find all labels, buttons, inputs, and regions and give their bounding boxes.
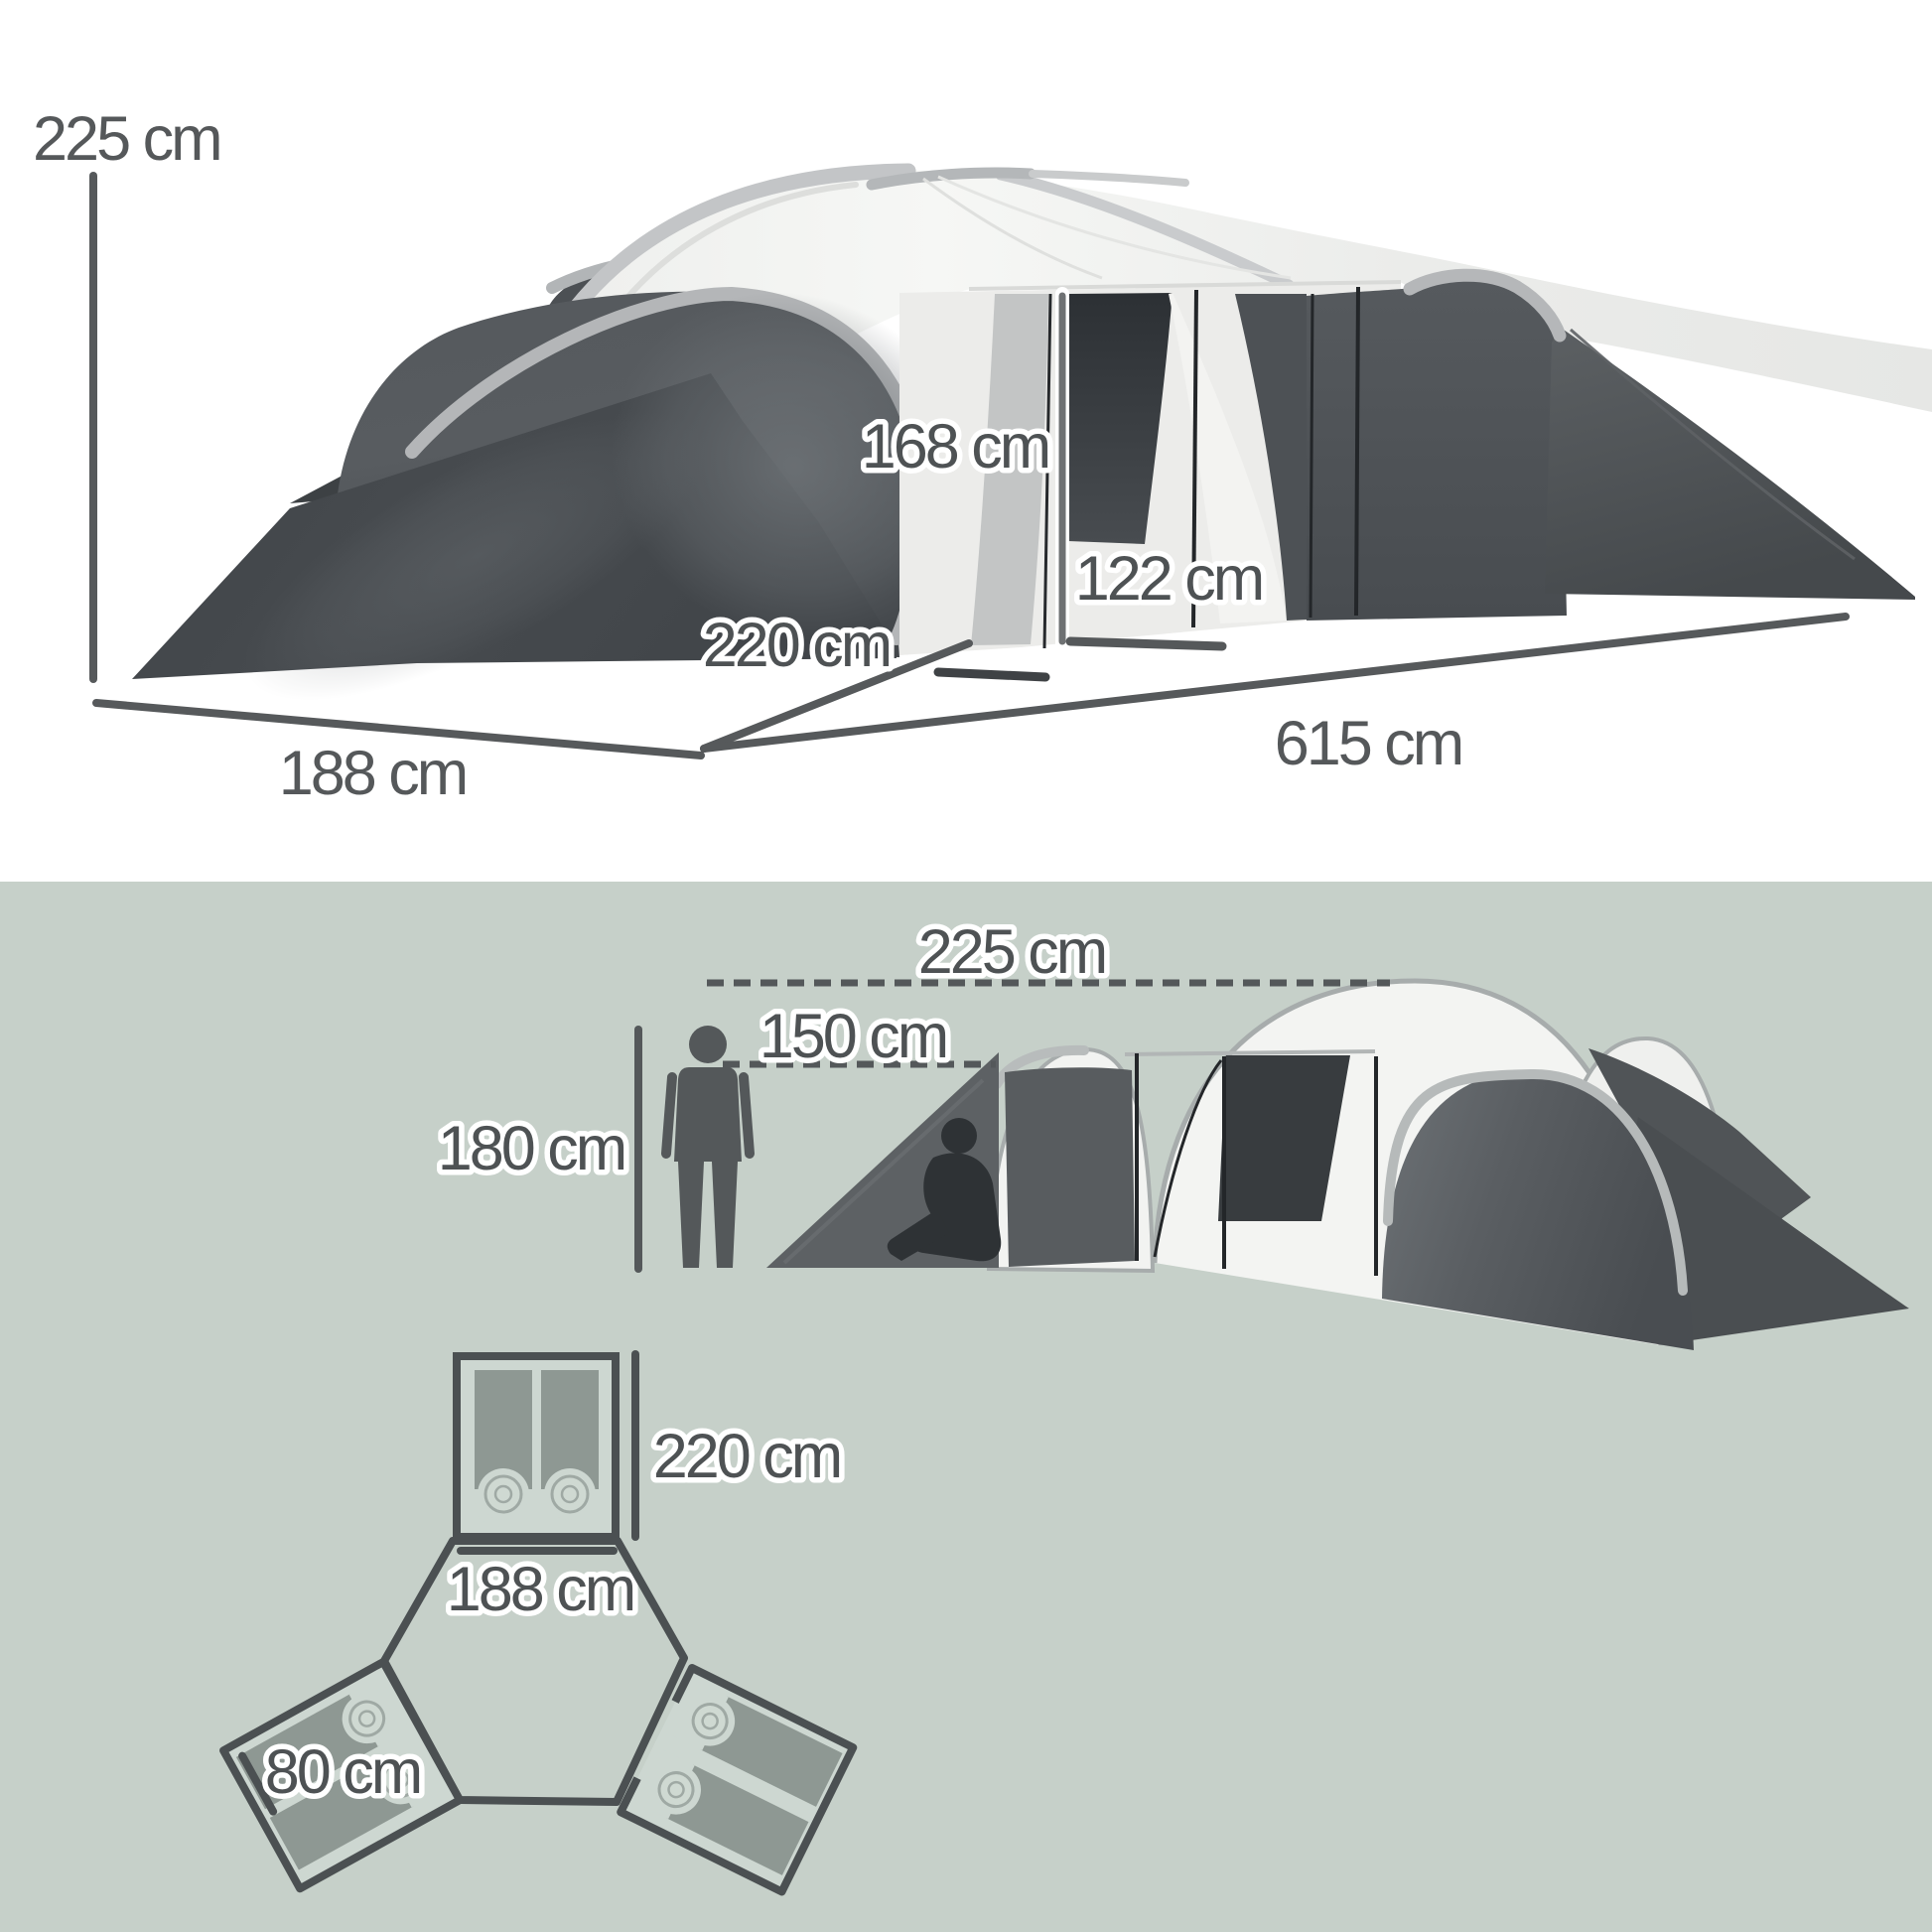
svg-text:188 cm: 188 cm <box>447 1555 634 1624</box>
svg-text:225 cm: 225 cm <box>918 917 1106 987</box>
svg-text:188 cm: 188 cm <box>279 739 467 808</box>
svg-text:122 cm: 122 cm <box>1075 544 1263 614</box>
svg-text:150 cm: 150 cm <box>759 1002 947 1071</box>
svg-text:220 cm: 220 cm <box>653 1422 841 1491</box>
svg-text:168 cm: 168 cm <box>862 412 1049 482</box>
svg-text:220 cm: 220 cm <box>703 611 891 680</box>
svg-text:615 cm: 615 cm <box>1275 709 1462 778</box>
svg-text:225 cm: 225 cm <box>33 104 220 174</box>
svg-text:80 cm: 80 cm <box>265 1737 421 1807</box>
svg-text:180 cm: 180 cm <box>438 1114 625 1183</box>
